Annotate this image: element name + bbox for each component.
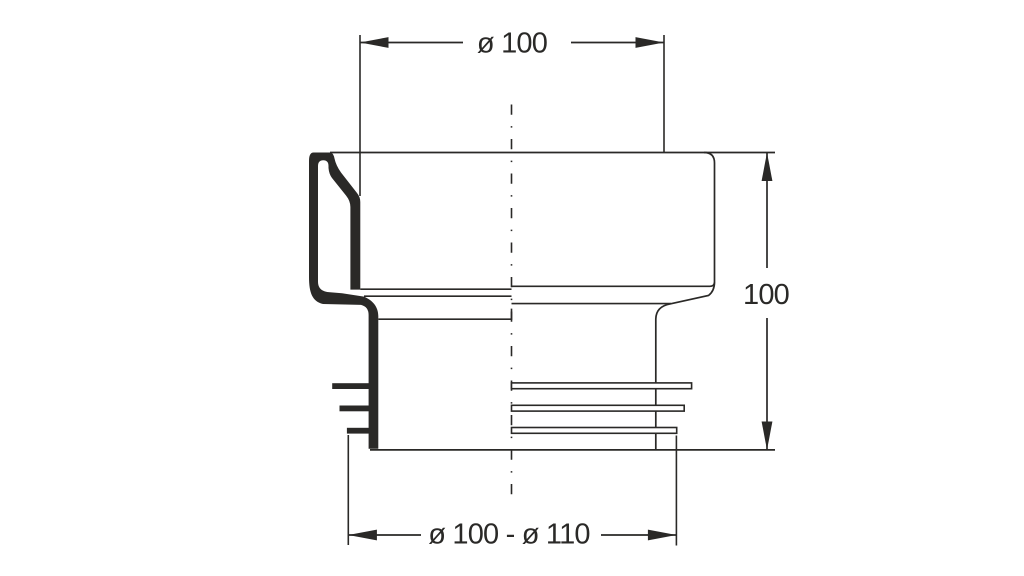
- svg-text:ø 100 - ø 110: ø 100 - ø 110: [428, 519, 590, 551]
- svg-text:100: 100: [743, 279, 789, 311]
- svg-text:ø 100: ø 100: [477, 28, 547, 60]
